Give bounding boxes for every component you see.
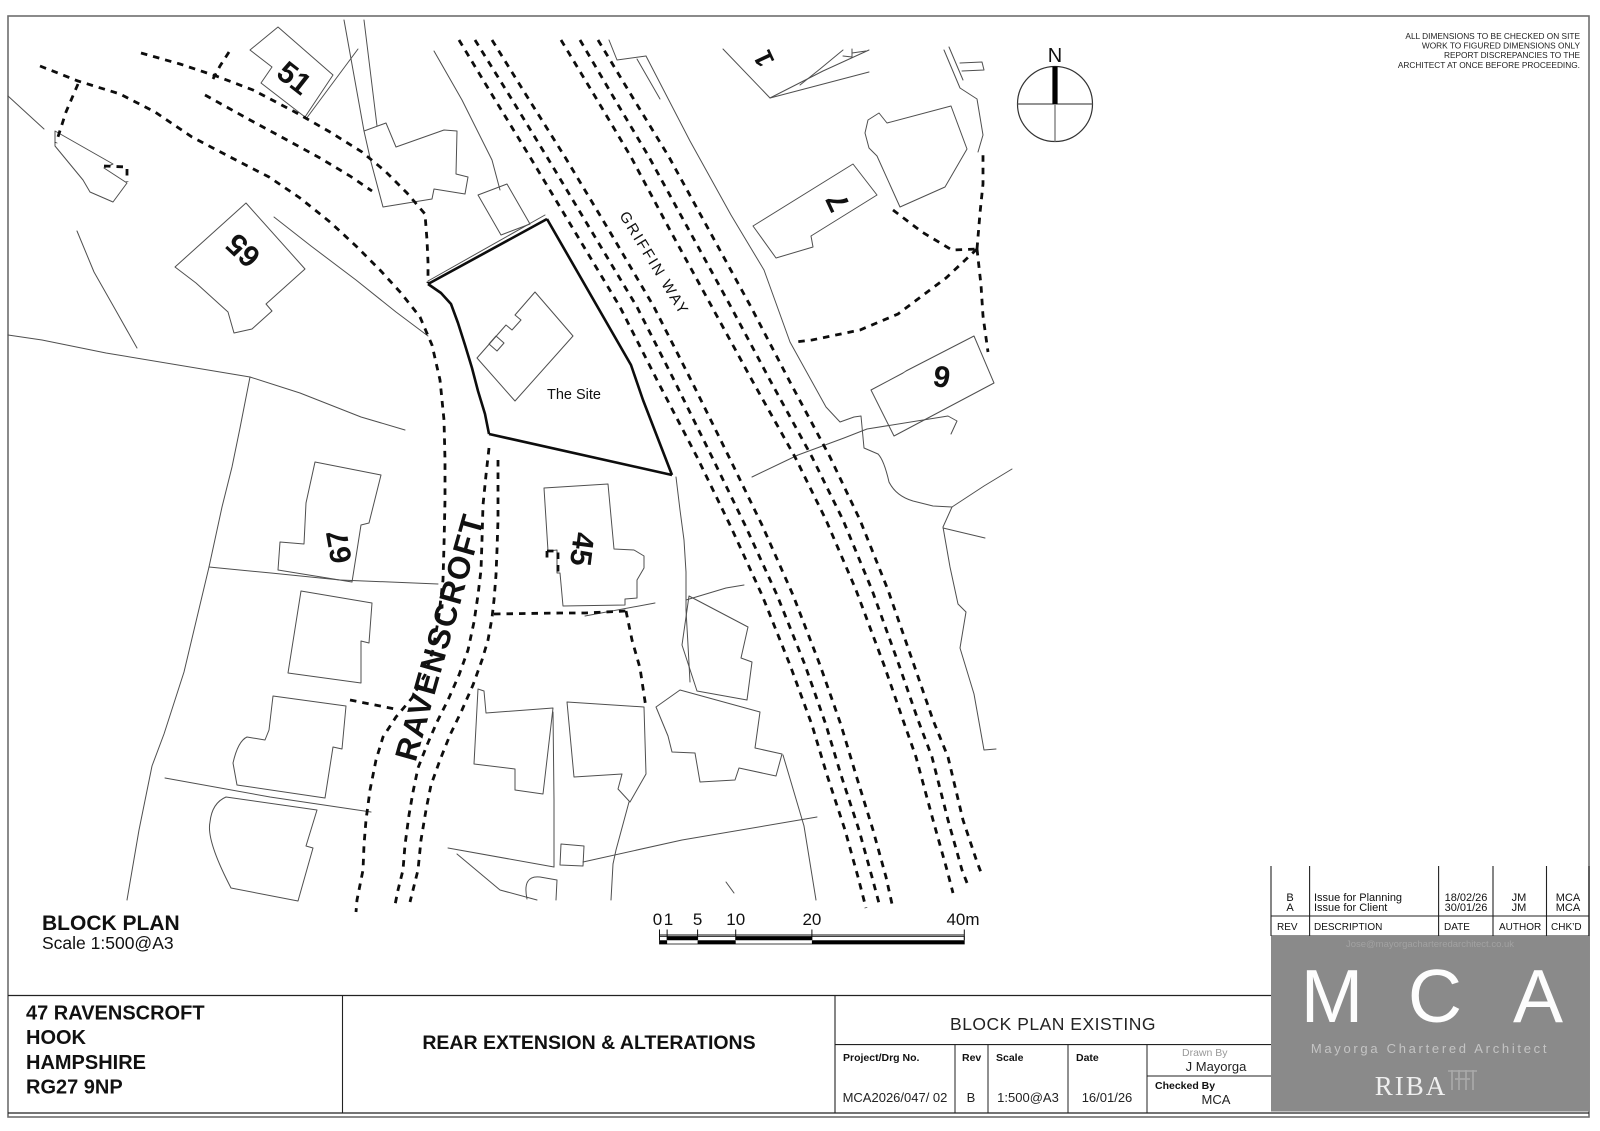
svg-text:ALL DIMENSIONS TO BE CHECKED O: ALL DIMENSIONS TO BE CHECKED ON SITE	[1405, 31, 1580, 41]
svg-text:J Mayorga: J Mayorga	[1186, 1059, 1247, 1074]
svg-text:0: 0	[653, 910, 662, 929]
svg-text:Issue for Client: Issue for Client	[1314, 902, 1387, 914]
svg-text:10: 10	[726, 910, 745, 929]
svg-text:67: 67	[320, 527, 358, 566]
svg-text:16/01/26: 16/01/26	[1082, 1090, 1133, 1105]
svg-text:Jose@mayorgacharteredarchitect: Jose@mayorgacharteredarchitect.co.uk	[1346, 939, 1514, 950]
svg-text:WORK TO FIGURED DIMENSIONS ONL: WORK TO FIGURED DIMENSIONS ONLY	[1422, 41, 1581, 51]
svg-text:HAMPSHIRE: HAMPSHIRE	[26, 1052, 146, 1074]
svg-text:BLOCK PLAN: BLOCK PLAN	[42, 912, 180, 935]
svg-text:20: 20	[802, 910, 821, 929]
svg-text:ARCHITECT AT ONCE BEFORE PROCE: ARCHITECT AT ONCE BEFORE PROCEEDING.	[1398, 60, 1580, 70]
svg-text:DATE: DATE	[1444, 922, 1470, 933]
svg-text:Rev: Rev	[962, 1052, 981, 1064]
svg-text:RIBA: RIBA	[1375, 1071, 1448, 1101]
svg-text:CHK’D: CHK’D	[1551, 922, 1582, 933]
svg-text:REAR EXTENSION & ALTERATIONS: REAR EXTENSION & ALTERATIONS	[422, 1032, 755, 1054]
svg-text:AUTHOR: AUTHOR	[1499, 922, 1541, 933]
svg-text:RG27 9NP: RG27 9NP	[26, 1077, 123, 1099]
svg-text:The Site: The Site	[547, 387, 601, 403]
svg-text:Scale 1:500@A3: Scale 1:500@A3	[42, 933, 174, 953]
svg-text:MCA: MCA	[1556, 902, 1581, 914]
svg-text:B: B	[967, 1090, 976, 1105]
svg-text:REPORT DISCREPANCIES TO THE: REPORT DISCREPANCIES TO THE	[1444, 50, 1580, 60]
svg-text:A: A	[1513, 954, 1563, 1038]
svg-text:Drawn By: Drawn By	[1182, 1047, 1228, 1059]
svg-text:MCA2026/047/ 02: MCA2026/047/ 02	[843, 1090, 948, 1105]
svg-text:MCA: MCA	[1202, 1092, 1231, 1107]
svg-text:HOOK: HOOK	[26, 1027, 87, 1049]
svg-text:M: M	[1301, 954, 1363, 1038]
svg-text:5: 5	[693, 910, 702, 929]
svg-text:Project/Drg No.: Project/Drg No.	[843, 1052, 920, 1064]
svg-text:Date: Date	[1076, 1052, 1099, 1064]
svg-text:N: N	[1048, 45, 1062, 67]
svg-text:1:500@A3: 1:500@A3	[997, 1090, 1059, 1105]
svg-text:Scale: Scale	[996, 1052, 1024, 1064]
svg-text:1: 1	[664, 910, 673, 929]
svg-text:45: 45	[563, 531, 600, 568]
svg-text:A: A	[1286, 902, 1294, 914]
svg-text:Checked By: Checked By	[1155, 1080, 1215, 1092]
svg-text:BLOCK PLAN EXISTING: BLOCK PLAN EXISTING	[950, 1014, 1156, 1034]
svg-text:C: C	[1408, 954, 1462, 1038]
svg-text:40m: 40m	[946, 910, 979, 929]
svg-text:JM: JM	[1512, 902, 1527, 914]
svg-text:REV: REV	[1277, 922, 1298, 933]
svg-text:DESCRIPTION: DESCRIPTION	[1314, 922, 1382, 933]
svg-text:30/01/26: 30/01/26	[1445, 902, 1488, 914]
svg-text:47 RAVENSCROFT: 47 RAVENSCROFT	[26, 1003, 205, 1025]
svg-text:Mayorga Chartered Architect: Mayorga Chartered Architect	[1311, 1041, 1549, 1056]
